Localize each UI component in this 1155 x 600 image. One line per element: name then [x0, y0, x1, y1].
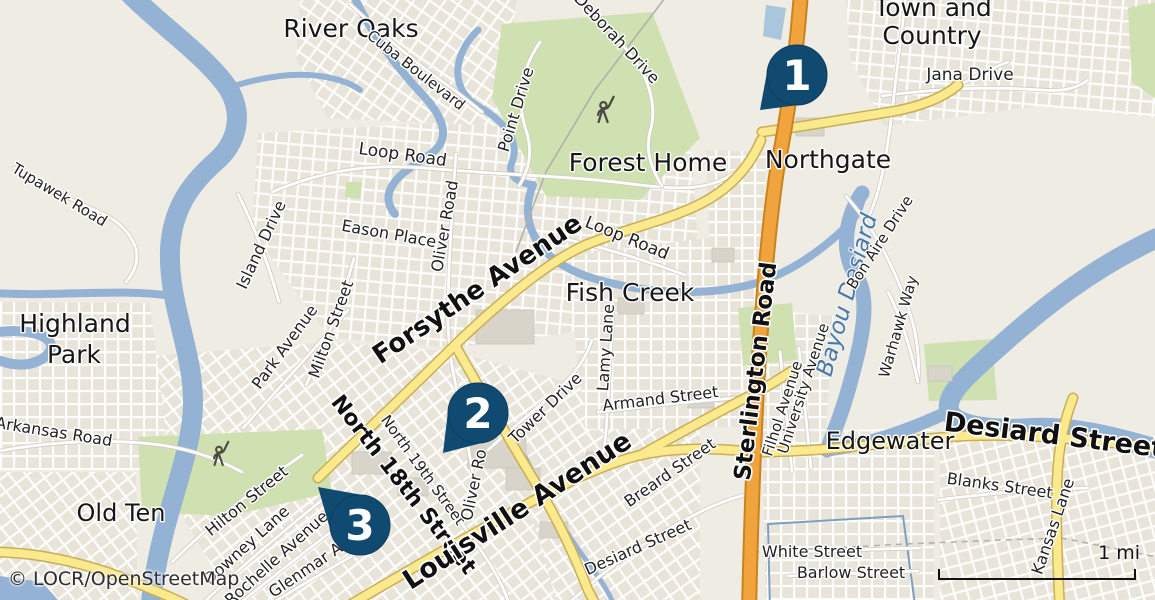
label-town-and-country-1: Town and — [873, 0, 992, 22]
scale-bar — [938, 569, 1136, 580]
map-canvas[interactable]: River OaksTown andCountryForest HomeNort… — [0, 0, 1155, 600]
label-highland-park-2: Park — [47, 340, 102, 369]
marker-number: 2 — [463, 389, 492, 438]
map-marker-1[interactable]: 1 — [760, 45, 827, 110]
label-town-and-country-2: Country — [882, 21, 982, 50]
scale-bar-label: 1 mi — [1040, 542, 1140, 564]
marker-number: 3 — [345, 501, 374, 550]
label-old-ten: Old Ten — [77, 499, 166, 527]
label-forest-home: Forest Home — [569, 148, 728, 177]
label-northgate: Northgate — [765, 145, 891, 174]
label-river-oaks: River Oaks — [283, 14, 418, 43]
map-attribution: © LOCR/OpenStreetMap — [8, 568, 239, 590]
marker-number: 1 — [782, 51, 811, 100]
label-edgewater: Edgewater — [826, 427, 955, 455]
map-svg: River OaksTown andCountryForest HomeNort… — [0, 0, 1155, 600]
label-white-street: White Street — [762, 542, 862, 561]
label-fish-creek: Fish Creek — [566, 278, 695, 307]
label-tupawek-road: Tupawek Road — [8, 159, 110, 230]
label-barlow-street: Barlow Street — [797, 563, 905, 582]
label-highland-park-1: Highland — [19, 309, 130, 338]
label-jana-drive: Jana Drive — [925, 65, 1013, 85]
